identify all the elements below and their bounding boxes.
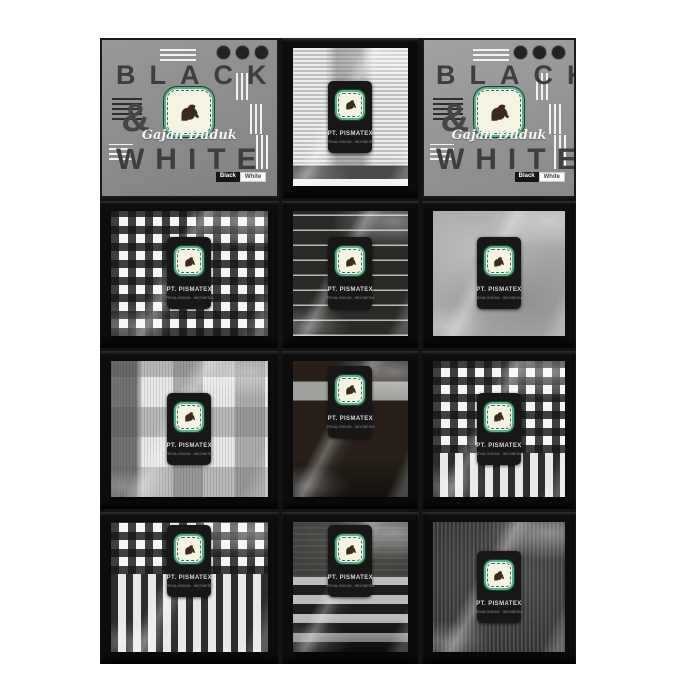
elephant-icon <box>174 97 204 127</box>
label-line2: PEKALONGAN - INDONESIA <box>475 451 523 456</box>
gift-box: PT. PISMATEX PEKALONGAN - INDONESIA <box>282 351 419 510</box>
label-line2: PEKALONGAN - INDONESIA <box>165 295 213 300</box>
gajah-duduk-logo-icon <box>335 375 365 405</box>
gift-box-lid: BLACK & Gajah Duduk WHITE Black White <box>100 38 279 198</box>
label-line2: PEKALONGAN - INDONESIA <box>165 451 213 456</box>
brand-script-name: Gajah Duduk <box>452 128 547 143</box>
elephant-icon <box>342 541 359 558</box>
gajah-duduk-logo-icon <box>484 402 514 432</box>
brand-script-name: Gajah Duduk <box>142 128 237 143</box>
label-line1: PT. PISMATEX <box>328 287 373 293</box>
pack-label: PT. PISMATEX PEKALONGAN - INDONESIA <box>477 551 521 623</box>
fabric-pinstripe-vertical: PT. PISMATEX PEKALONGAN - INDONESIA <box>433 522 565 652</box>
stripe-deco <box>250 104 264 134</box>
label-line2: PEKALONGAN - INDONESIA <box>326 139 374 144</box>
fabric-fine-stripes: PT. PISMATEX PEKALONGAN - INDONESIA <box>293 48 408 186</box>
pack-label: PT. PISMATEX PEKALONGAN - INDONESIA <box>328 81 372 153</box>
stripe-deco <box>160 48 196 61</box>
gift-box: PT. PISMATEX PEKALONGAN - INDONESIA <box>422 201 576 348</box>
label-line1: PT. PISMATEX <box>167 287 212 293</box>
pack-label: PT. PISMATEX PEKALONGAN - INDONESIA <box>328 366 372 438</box>
badge-black: Black <box>216 172 240 182</box>
fabric-gray-plaid: PT. PISMATEX PEKALONGAN - INDONESIA <box>111 361 268 498</box>
label-line2: PEKALONGAN - INDONESIA <box>326 295 374 300</box>
label-line2: PEKALONGAN - INDONESIA <box>475 609 523 614</box>
fabric-check-stripe: PT. PISMATEX PEKALONGAN - INDONESIA <box>111 522 268 652</box>
product-photo-grid: BLACK & Gajah Duduk WHITE Black White PT… <box>100 38 576 664</box>
gift-box: PT. PISMATEX PEKALONGAN - INDONESIA <box>100 512 279 664</box>
pack-label: PT. PISMATEX PEKALONGAN - INDONESIA <box>328 237 372 309</box>
gift-box: PT. PISMATEX PEKALONGAN - INDONESIA <box>422 512 576 664</box>
stripe-deco <box>473 48 509 61</box>
elephant-icon <box>181 408 198 425</box>
black-white-badge: Black White <box>216 172 266 182</box>
gajah-duduk-logo-icon <box>335 90 365 120</box>
gift-box-lid: BLACK & Gajah Duduk WHITE Black White <box>422 38 576 198</box>
elephant-icon <box>181 541 198 558</box>
elephant-icon <box>342 253 359 270</box>
label-line2: PEKALONGAN - INDONESIA <box>165 583 213 588</box>
elephant-icon <box>490 408 507 425</box>
label-line1: PT. PISMATEX <box>476 287 521 293</box>
gift-box: PT. PISMATEX PEKALONGAN - INDONESIA <box>282 38 419 198</box>
pack-label: PT. PISMATEX PEKALONGAN - INDONESIA <box>167 393 211 465</box>
elephant-icon <box>342 96 359 113</box>
fabric-gingham: PT. PISMATEX PEKALONGAN - INDONESIA <box>111 211 268 336</box>
elephant-icon <box>490 567 507 584</box>
gajah-duduk-logo-icon <box>174 402 204 432</box>
label-line1: PT. PISMATEX <box>167 443 212 449</box>
gajah-duduk-logo-icon <box>174 246 204 276</box>
pack-label: PT. PISMATEX PEKALONGAN - INDONESIA <box>167 525 211 597</box>
fabric-pinstripe-horizontal: PT. PISMATEX PEKALONGAN - INDONESIA <box>293 211 408 336</box>
gift-box: PT. PISMATEX PEKALONGAN - INDONESIA <box>282 512 419 664</box>
fabric-dark-with-band: PT. PISMATEX PEKALONGAN - INDONESIA <box>293 361 408 498</box>
pack-label: PT. PISMATEX PEKALONGAN - INDONESIA <box>477 393 521 465</box>
stripe-deco <box>549 104 563 134</box>
gift-box: PT. PISMATEX PEKALONGAN - INDONESIA <box>422 351 576 510</box>
black-white-badge: Black White <box>515 172 565 182</box>
elephant-icon <box>484 97 514 127</box>
label-line1: PT. PISMATEX <box>328 131 373 137</box>
fabric-check-stripe: PT. PISMATEX PEKALONGAN - INDONESIA <box>433 361 565 498</box>
gift-box: PT. PISMATEX PEKALONGAN - INDONESIA <box>100 351 279 510</box>
badge-white: White <box>240 172 266 182</box>
flower-dots-icon <box>514 46 565 59</box>
elephant-icon <box>490 253 507 270</box>
badge-white: White <box>539 172 565 182</box>
pack-label: PT. PISMATEX PEKALONGAN - INDONESIA <box>477 237 521 309</box>
label-line2: PEKALONGAN - INDONESIA <box>326 424 374 429</box>
label-line1: PT. PISMATEX <box>476 601 521 607</box>
fabric-plain-gray: PT. PISMATEX PEKALONGAN - INDONESIA <box>433 211 565 336</box>
gift-box: PT. PISMATEX PEKALONGAN - INDONESIA <box>100 201 279 348</box>
gajah-duduk-logo-icon <box>484 560 514 590</box>
label-line2: PEKALONGAN - INDONESIA <box>475 295 523 300</box>
label-line2: PEKALONGAN - INDONESIA <box>326 583 374 588</box>
elephant-icon <box>181 253 198 270</box>
flower-dots-icon <box>217 46 268 59</box>
pack-label: PT. PISMATEX PEKALONGAN - INDONESIA <box>167 237 211 309</box>
fabric-bold-stripes: PT. PISMATEX PEKALONGAN - INDONESIA <box>293 522 408 652</box>
label-line1: PT. PISMATEX <box>328 416 373 422</box>
label-line1: PT. PISMATEX <box>167 575 212 581</box>
gajah-duduk-logo-icon <box>484 246 514 276</box>
gajah-duduk-logo-icon <box>335 534 365 564</box>
pack-label: PT. PISMATEX PEKALONGAN - INDONESIA <box>328 525 372 597</box>
gajah-duduk-logo-icon <box>335 246 365 276</box>
label-line1: PT. PISMATEX <box>476 443 521 449</box>
gajah-duduk-logo-icon <box>174 534 204 564</box>
gift-box: PT. PISMATEX PEKALONGAN - INDONESIA <box>282 201 419 348</box>
badge-black: Black <box>515 172 539 182</box>
label-line1: PT. PISMATEX <box>328 575 373 581</box>
elephant-icon <box>342 381 359 398</box>
